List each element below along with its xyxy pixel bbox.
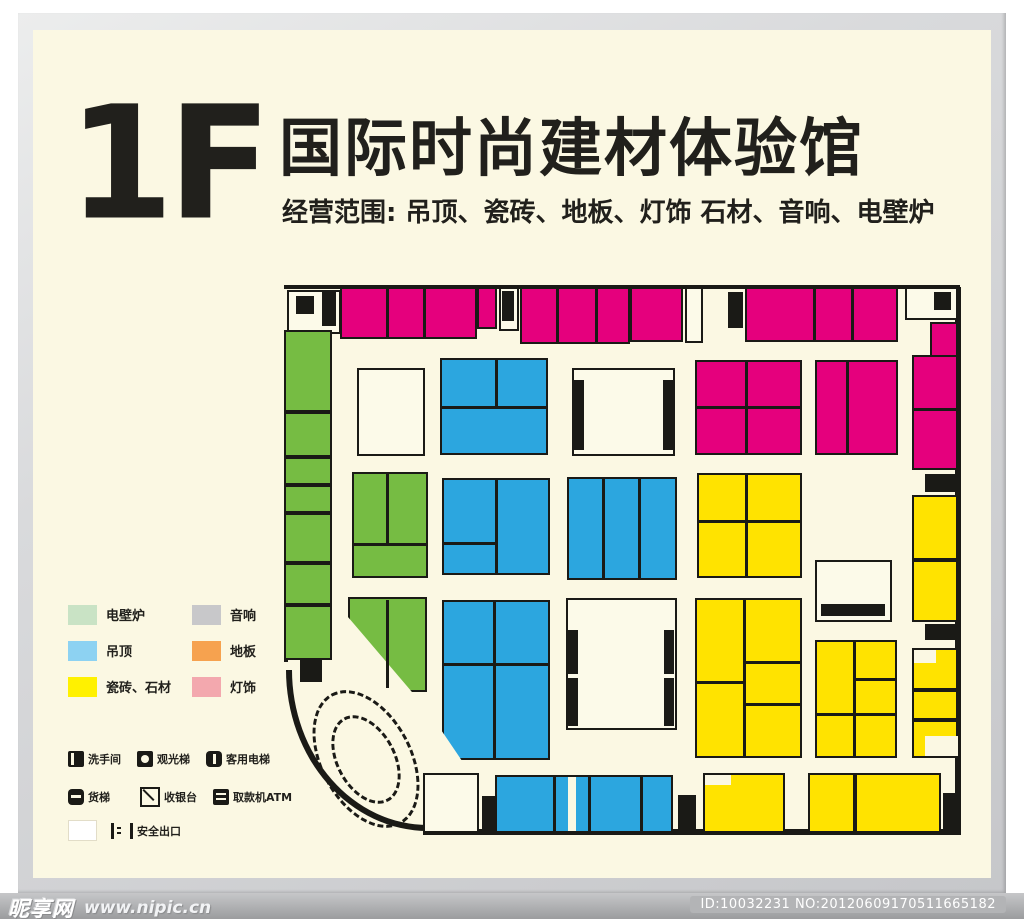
- plan-rect: [925, 624, 955, 640]
- plan-rect: [300, 660, 322, 682]
- plan-rect: [357, 368, 425, 456]
- legend-item: 电壁炉: [68, 604, 171, 625]
- plan-line: [851, 287, 854, 342]
- plan-rect: [296, 296, 314, 314]
- legend-swatch-lighting: [192, 677, 221, 697]
- plan-line: [588, 775, 591, 833]
- legend-label: 吊顶: [106, 641, 132, 660]
- plan-rect: [705, 775, 731, 785]
- plan-line: [386, 472, 389, 545]
- plan-rect: [284, 457, 332, 485]
- legend-label: 灯饰: [230, 677, 256, 696]
- plan-rect: [568, 630, 578, 674]
- plan-rect: [808, 773, 855, 833]
- plan-rect: [502, 291, 514, 321]
- plan-poly: [442, 600, 550, 760]
- plan-line: [423, 287, 426, 339]
- plan-rect: [423, 773, 479, 833]
- facility-row-1: 洗手间 观光梯 客用电梯: [68, 751, 270, 767]
- plan-rect: [925, 736, 958, 756]
- plan-line: [695, 681, 743, 684]
- plan-line: [695, 406, 802, 409]
- plan-rect: [284, 605, 332, 660]
- watermark-url: www.nipic.cn: [84, 898, 211, 918]
- plan-line: [743, 598, 746, 758]
- plan-line: [440, 406, 548, 409]
- facility-label: 洗手间: [88, 751, 121, 767]
- plan-rect: [821, 604, 885, 616]
- plan-line: [912, 408, 958, 411]
- plan-rect: [685, 287, 703, 343]
- plan-rect: [630, 287, 683, 342]
- floor-number: 1F: [68, 86, 266, 243]
- plan-rect: [495, 775, 673, 833]
- plan-line: [553, 775, 556, 833]
- facility-label: 收银台: [164, 789, 197, 805]
- plan-rect: [568, 678, 578, 726]
- exit-area-swatch: [68, 820, 97, 841]
- plan-rect: [567, 477, 677, 580]
- plan-rect: [284, 412, 332, 457]
- plan-rect: [914, 650, 936, 663]
- plan-rect: [568, 777, 576, 831]
- observation-elevator-icon: [137, 751, 153, 767]
- plan-rect: [284, 513, 332, 563]
- plan-rect: [284, 485, 332, 513]
- plan-line: [815, 713, 897, 716]
- legend-label: 瓷砖、石材: [106, 677, 171, 696]
- atm-icon: [213, 789, 229, 805]
- legend-label: 地板: [230, 641, 256, 660]
- plan-line: [697, 520, 802, 523]
- cashier-icon: [140, 787, 160, 807]
- legend-label: 音响: [230, 605, 256, 624]
- facility-item: 客用电梯: [206, 751, 270, 767]
- plan-rect: [664, 678, 674, 726]
- facility-item: 观光梯: [137, 751, 190, 767]
- facility-item: 取款机ATM: [213, 789, 292, 805]
- facility-row-2: 货梯 收银台 取款机ATM: [68, 787, 292, 807]
- watermark-site: 昵享网 www.nipic.cn: [8, 893, 211, 919]
- plan-line: [638, 477, 641, 580]
- plan-line: [745, 473, 748, 578]
- plan-line: [746, 703, 802, 706]
- signboard: 1F 国际时尚建材体验馆 经营范围: 吊顶、瓷砖、地板、灯饰 石材、音响、电壁炉…: [0, 0, 1024, 919]
- facility-label: 货梯: [88, 789, 110, 805]
- plan-rect: [572, 368, 675, 456]
- plan-line: [853, 640, 856, 758]
- legend-swatch-ceiling: [68, 641, 97, 661]
- plan-rect: [697, 473, 802, 578]
- plan-rect: [574, 380, 584, 450]
- plan-line: [556, 287, 559, 344]
- plan-rect: [930, 322, 958, 357]
- plan-rect: [912, 690, 958, 720]
- plan-rect: [943, 793, 959, 833]
- stairs-icon: [111, 823, 133, 839]
- plan-rect: [284, 330, 332, 412]
- plan-rect: [745, 287, 898, 342]
- plan-rect: [815, 360, 898, 455]
- plan-line: [813, 287, 816, 342]
- plan-line: [442, 542, 497, 545]
- plan-rect: [284, 563, 332, 605]
- page-subtitle: 经营范围: 吊顶、瓷砖、地板、灯饰 石材、音响、电壁炉: [282, 192, 935, 229]
- plan-line: [386, 287, 389, 339]
- facility-row-3: 安全出口: [68, 820, 181, 841]
- facility-item: 安全出口: [68, 820, 181, 841]
- facility-label: 观光梯: [157, 751, 190, 767]
- legend-column-1: 电壁炉 吊顶 瓷砖、石材: [68, 604, 171, 697]
- facility-item: 洗手间: [68, 751, 121, 767]
- plan-line: [595, 287, 598, 344]
- plan-rect: [934, 292, 951, 310]
- plan-rect: [695, 598, 802, 758]
- legend-item: 灯饰: [192, 676, 256, 697]
- plan-line: [495, 358, 498, 408]
- plan-line: [846, 360, 849, 455]
- passenger-elevator-icon: [206, 751, 222, 767]
- plan-rect: [477, 287, 497, 329]
- watermark-id: ID:10032231 NO:20120609170511665182: [690, 896, 1006, 913]
- plan-line: [495, 478, 498, 575]
- legend-item: 瓷砖、石材: [68, 676, 171, 697]
- plan-rect: [815, 640, 897, 758]
- legend-swatch-flooring: [192, 641, 221, 661]
- plan-rect: [912, 560, 958, 622]
- plan-line: [640, 775, 643, 833]
- plan-rect: [925, 474, 955, 492]
- legend-swatch-audio: [192, 605, 221, 625]
- plan-rect: [855, 773, 941, 833]
- legend-column-2: 音响 地板 灯饰: [192, 604, 256, 697]
- plan-line: [856, 678, 897, 681]
- plan-line: [746, 661, 802, 664]
- legend-swatch-fireplace: [68, 605, 97, 625]
- facility-label: 安全出口: [137, 823, 181, 839]
- plan-rect: [728, 292, 743, 328]
- plan-rect: [663, 380, 673, 450]
- plan-rect: [322, 292, 336, 326]
- page-title: 国际时尚建材体验馆: [279, 98, 864, 189]
- facility-item: 货梯: [68, 789, 110, 805]
- plan-rect: [912, 495, 958, 560]
- plan-rect: [566, 598, 677, 730]
- plan-rect: [912, 355, 958, 470]
- legend-swatch-tile-stone: [68, 677, 97, 697]
- plan-rect: [664, 630, 674, 674]
- facility-label: 客用电梯: [226, 751, 270, 767]
- plan-line: [442, 663, 550, 666]
- freight-elevator-icon: [68, 789, 84, 805]
- plan-rect: [678, 795, 696, 831]
- watermark-logo: 昵享网: [8, 893, 74, 919]
- plan-line: [602, 477, 605, 580]
- plan-line: [352, 543, 428, 546]
- legend-item: 吊顶: [68, 640, 171, 661]
- restroom-icon: [68, 751, 84, 767]
- plan-rect: [520, 287, 630, 344]
- plan-rect: [352, 472, 428, 578]
- plan-line: [386, 600, 389, 688]
- legend-item: 地板: [192, 640, 256, 661]
- facility-item: 收银台: [140, 787, 197, 807]
- legend-label: 电壁炉: [106, 605, 145, 624]
- legend-item: 音响: [192, 604, 256, 625]
- floor-plan: [284, 282, 962, 840]
- plan-rect: [340, 287, 477, 339]
- plan-line: [493, 600, 496, 760]
